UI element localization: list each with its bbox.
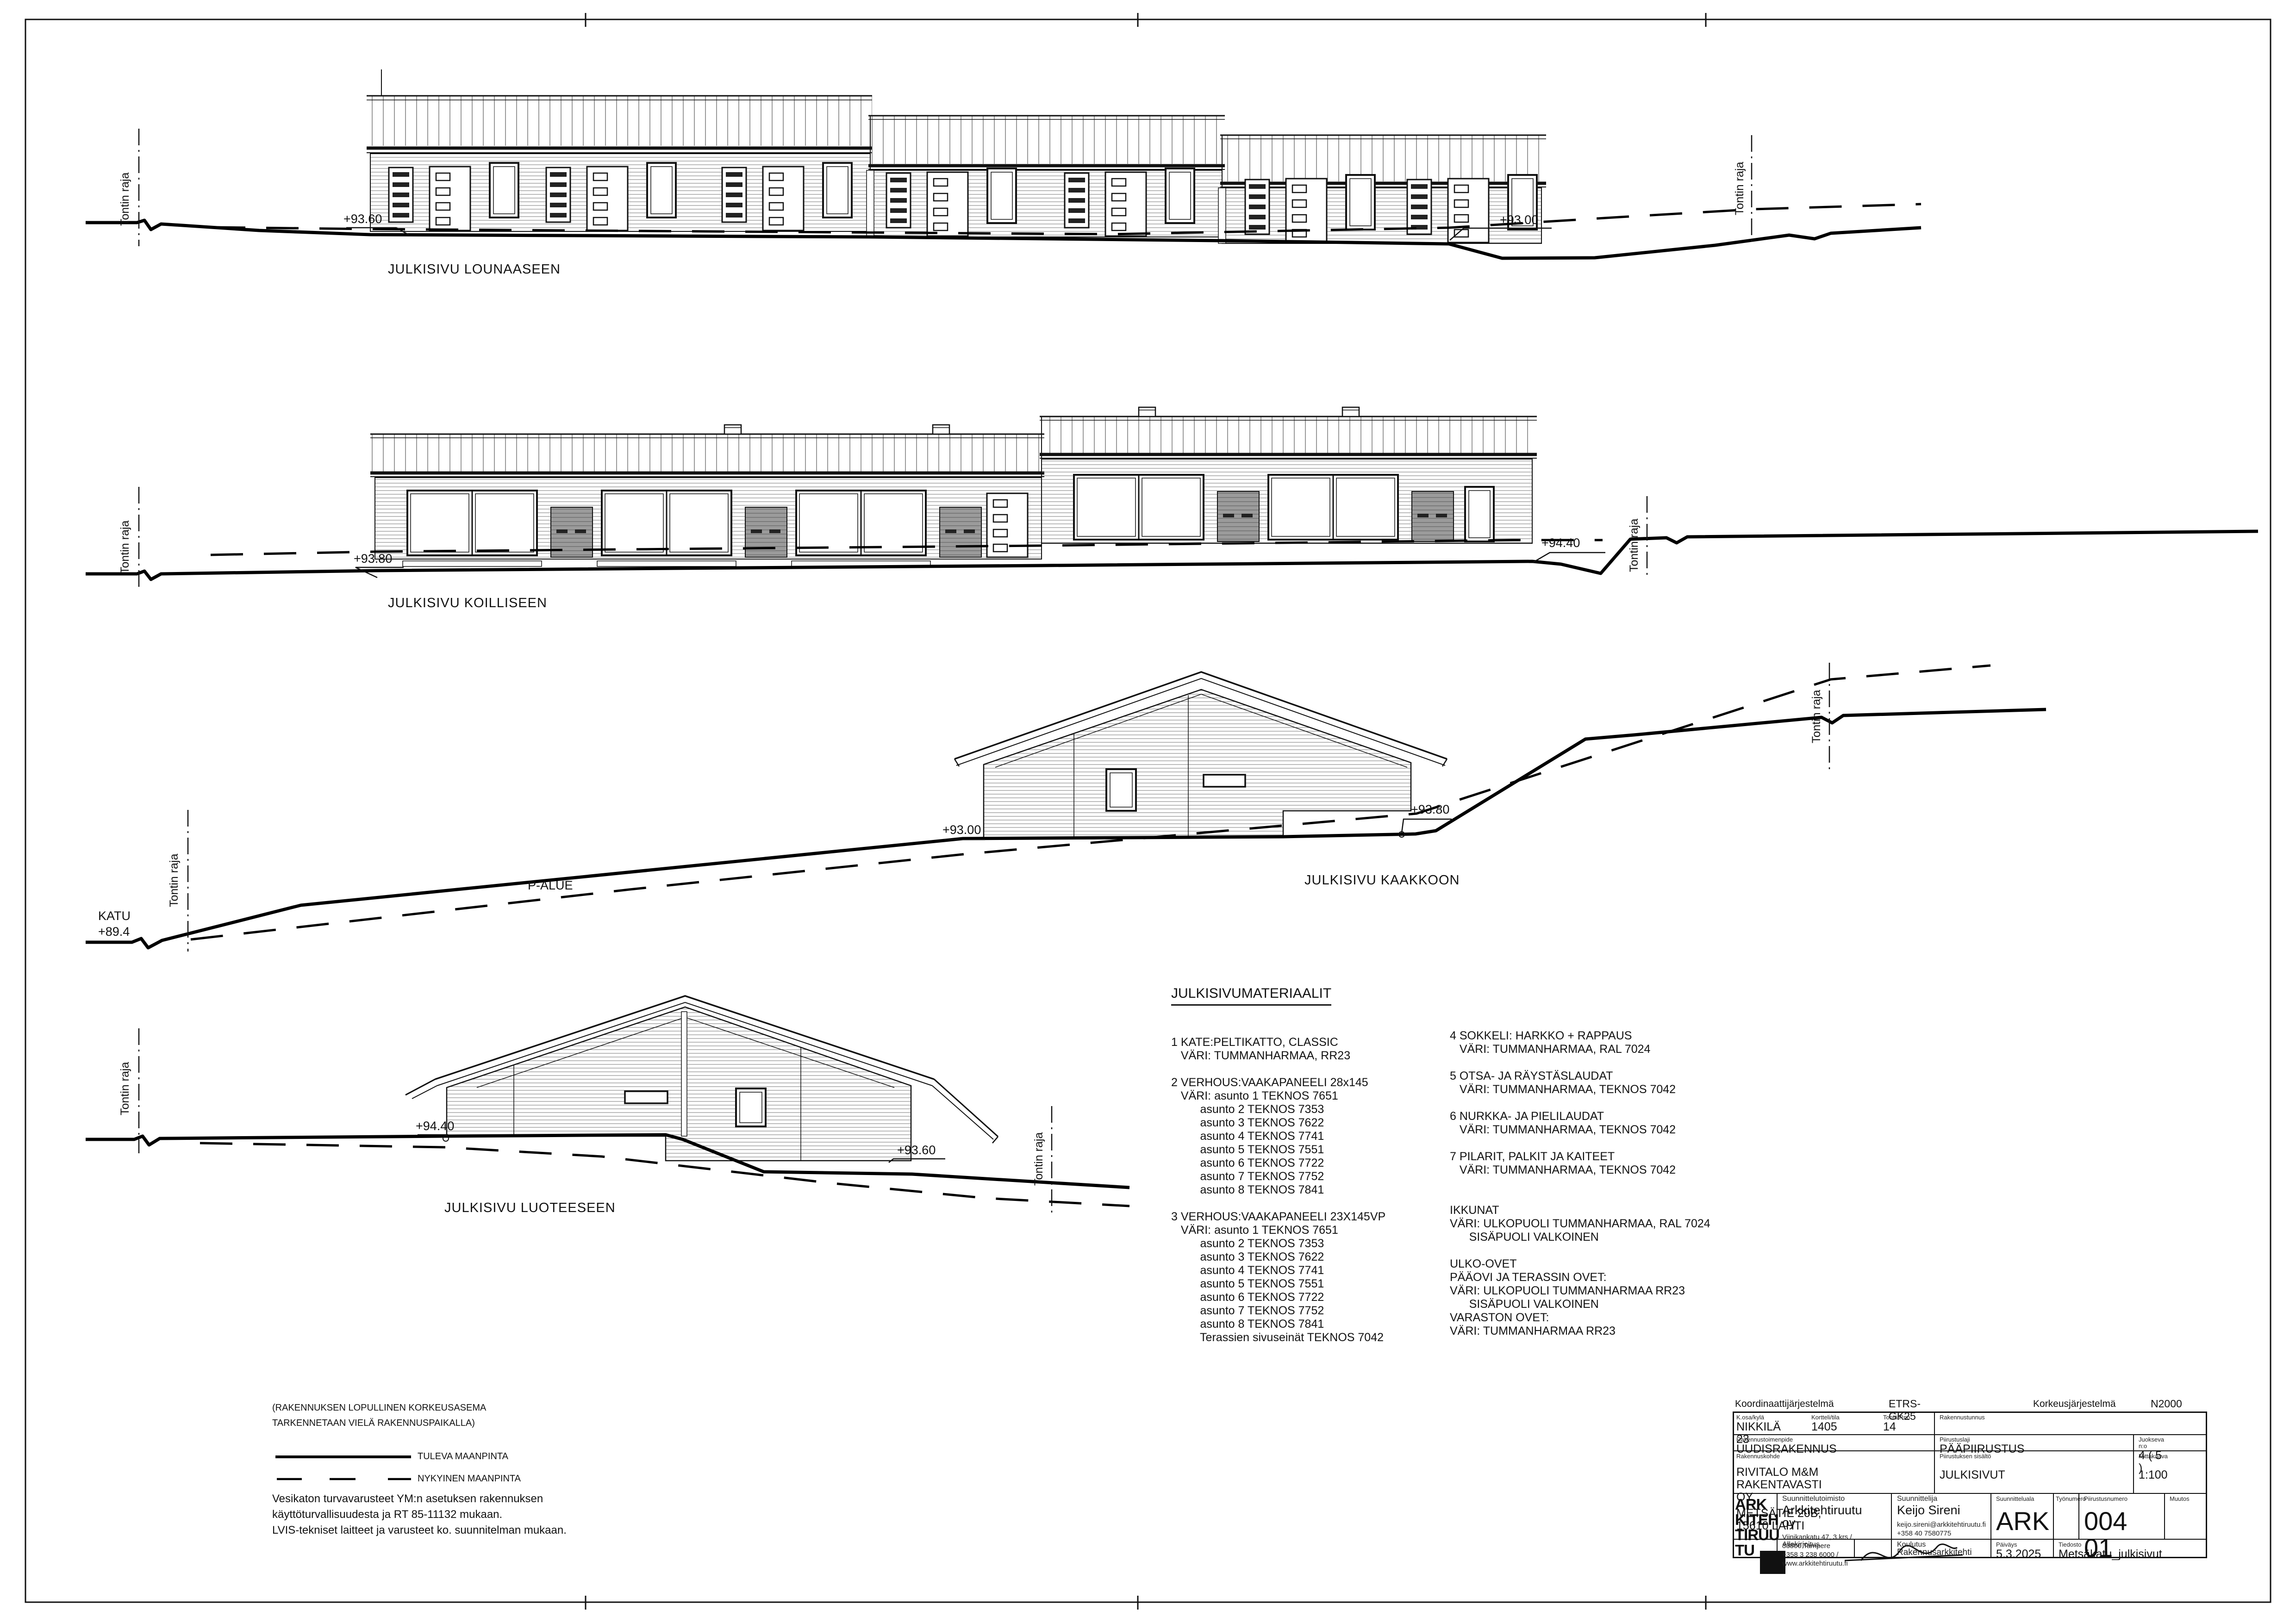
legend-existing-ground: NYKYINEN MAANPINTA — [418, 1474, 521, 1484]
content-cell: Piirustuksen sisältö JULKISIVUT — [1936, 1451, 2009, 1483]
legend-line-samples — [275, 1457, 411, 1479]
level-mark: +94.40 — [1541, 536, 1580, 550]
scale-cell: Mittakaava 1:100 — [2135, 1451, 2171, 1483]
level-mark: +93.00 — [942, 823, 981, 837]
elevation-title-northeast: JULKISIVU KOILLISEEN — [388, 596, 547, 611]
block-cell: Kortteli/tila 1405 — [1808, 1412, 1843, 1435]
height-system-label: Korkeusjärjestelmä — [2033, 1399, 2116, 1410]
plot-boundary-label: Tontin raja — [1810, 665, 1823, 743]
plot-cell: Tontti/Rno 14 — [1879, 1412, 1914, 1435]
materials-column-1: 1 KATE:PELTIKATTO, CLASSIC VÄRI: TUMMANH… — [1171, 1036, 1385, 1344]
plot-boundary-label: Tontin raja — [119, 1037, 132, 1115]
legend-future-ground: TULEVA MAANPINTA — [418, 1451, 508, 1462]
rule — [2133, 1434, 2134, 1493]
field-cell: Suunnitteluala ARK — [1992, 1494, 2053, 1536]
level-mark: +94.40 — [416, 1119, 454, 1133]
plot-boundary-label: Tontin raja — [168, 828, 181, 907]
level-mark: +93.60 — [897, 1143, 936, 1157]
elevation-title-southeast: JULKISIVU KAAKKOON — [1304, 873, 1460, 888]
revision-cell: Muutos — [2166, 1494, 2193, 1504]
coordinate-system-label: Koordinaattijärjestelmä — [1735, 1399, 1834, 1410]
rule — [1934, 1412, 1935, 1493]
street-label: KATU — [98, 909, 131, 923]
file-cell: Tiedosto Metsäkatu_julkisivut — [2055, 1540, 2166, 1562]
education-cell: Koulutus Rakennusarkkitehti — [1893, 1540, 1976, 1558]
signature-cell: Allekirjoitus — [1778, 1540, 1823, 1550]
elevation-southeast — [86, 663, 2046, 951]
materials-title: JULKISIVUMATERIAALIT — [1171, 986, 1331, 1006]
street-level: +89.4 — [98, 925, 130, 939]
elevation-title-southwest: JULKISIVU LOUNAASEEN — [388, 262, 561, 277]
site-elevation-note: (RAKENNUKSEN LOPULLINEN KORKEUSASEMA TAR… — [272, 1400, 486, 1431]
level-mark: +93.60 — [343, 212, 382, 226]
designer-cell: Suunnittelija Keijo Sireni keijo.sireni@… — [1893, 1494, 1990, 1540]
general-notes: Vesikaton turvavarusteet YM:n asetuksen … — [272, 1491, 567, 1538]
future-ground-line — [86, 1135, 1129, 1188]
existing-ground-line — [200, 1143, 1129, 1206]
building-id-cell: Rakennustunnus — [1936, 1412, 1989, 1423]
materials-column-2: 4 SOKKELI: HARKKO + RAPPAUS VÄRI: TUMMAN… — [1450, 1029, 1710, 1338]
elevation-southwest — [86, 69, 1921, 258]
plot-boundary-label: Tontin raja — [1032, 1107, 1046, 1186]
level-mark: +93.80 — [1411, 802, 1449, 817]
drawing-sheet: JULKISIVU LOUNAASEEN JULKISIVU KOILLISEE… — [0, 0, 2296, 1623]
level-mark: +93.00 — [1500, 213, 1538, 227]
height-system-value: N2000 — [2151, 1398, 2182, 1410]
elevation-title-northwest: JULKISIVU LUOTEESEEN — [444, 1200, 616, 1216]
parking-area-label: P-ALUE — [528, 878, 573, 893]
elevation-northwest — [86, 996, 1129, 1213]
level-mark: +93.80 — [354, 552, 392, 566]
office-cell: Suunnittelutoimisto Arkkitehtiruutu oy V… — [1778, 1494, 1866, 1570]
rule — [1891, 1493, 1892, 1558]
plot-boundary-label: Tontin raja — [1628, 493, 1641, 572]
elevation-linework — [0, 0, 2296, 1623]
plot-boundary-label: Tontin raja — [119, 495, 132, 574]
date-cell: Päiväys 5.3.2025 — [1992, 1540, 2045, 1562]
office-logo: ARK KITEH TIRUU TU — [1735, 1497, 1779, 1558]
rule — [2053, 1493, 2054, 1558]
plot-boundary-label: Tontin raja — [119, 147, 132, 226]
rule — [2164, 1493, 2165, 1539]
plot-boundary-label: Tontin raja — [1733, 137, 1747, 215]
elevation-northeast — [86, 407, 2258, 587]
rule — [1990, 1493, 1991, 1558]
